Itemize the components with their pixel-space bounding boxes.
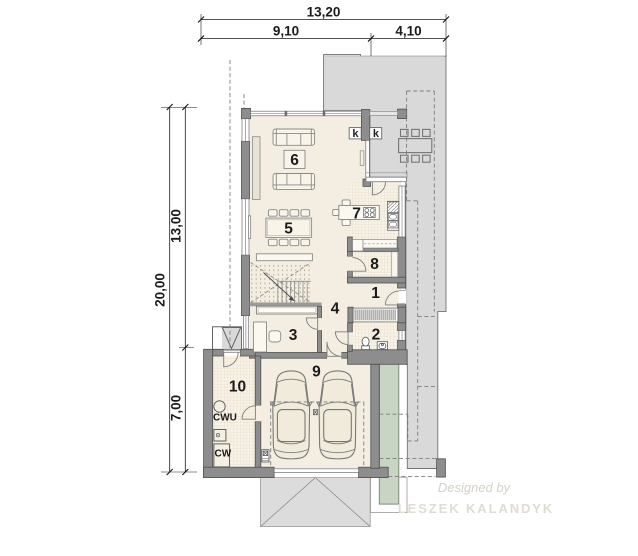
svg-text:LESZEK KALANDYK: LESZEK KALANDYK [398, 501, 554, 516]
svg-text:9: 9 [312, 364, 321, 381]
svg-text:8: 8 [370, 256, 379, 273]
svg-text:13,20: 13,20 [307, 4, 341, 19]
svg-text:CW: CW [215, 449, 232, 460]
svg-text:7: 7 [352, 206, 361, 223]
svg-text:13,00: 13,00 [169, 209, 184, 243]
svg-text:4,10: 4,10 [395, 24, 421, 39]
svg-text:7,00: 7,00 [169, 395, 184, 421]
svg-text:6: 6 [290, 152, 299, 169]
svg-text:Designed by: Designed by [438, 480, 512, 495]
svg-text:k: k [373, 128, 380, 140]
svg-text:1: 1 [371, 285, 380, 302]
svg-text:3: 3 [289, 327, 298, 344]
svg-text:20,00: 20,00 [153, 273, 168, 307]
svg-text:5: 5 [284, 220, 293, 237]
svg-text:4: 4 [331, 301, 340, 318]
svg-text:CWU: CWU [213, 412, 237, 423]
svg-text:10: 10 [229, 379, 246, 396]
svg-text:2: 2 [372, 327, 381, 344]
svg-text:k: k [352, 128, 359, 140]
svg-text:9,10: 9,10 [273, 24, 299, 39]
